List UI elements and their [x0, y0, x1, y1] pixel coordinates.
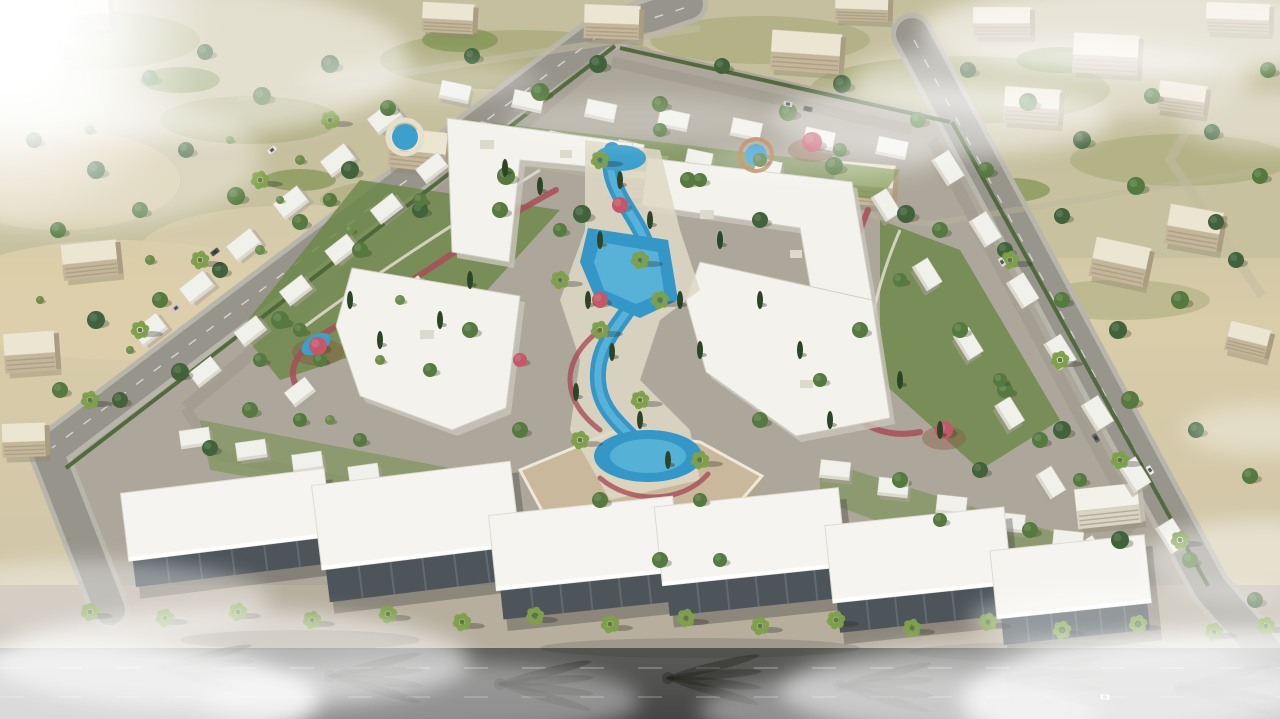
compound-masterplan-render: [0, 0, 1280, 719]
aerial-render: [0, 0, 1280, 719]
